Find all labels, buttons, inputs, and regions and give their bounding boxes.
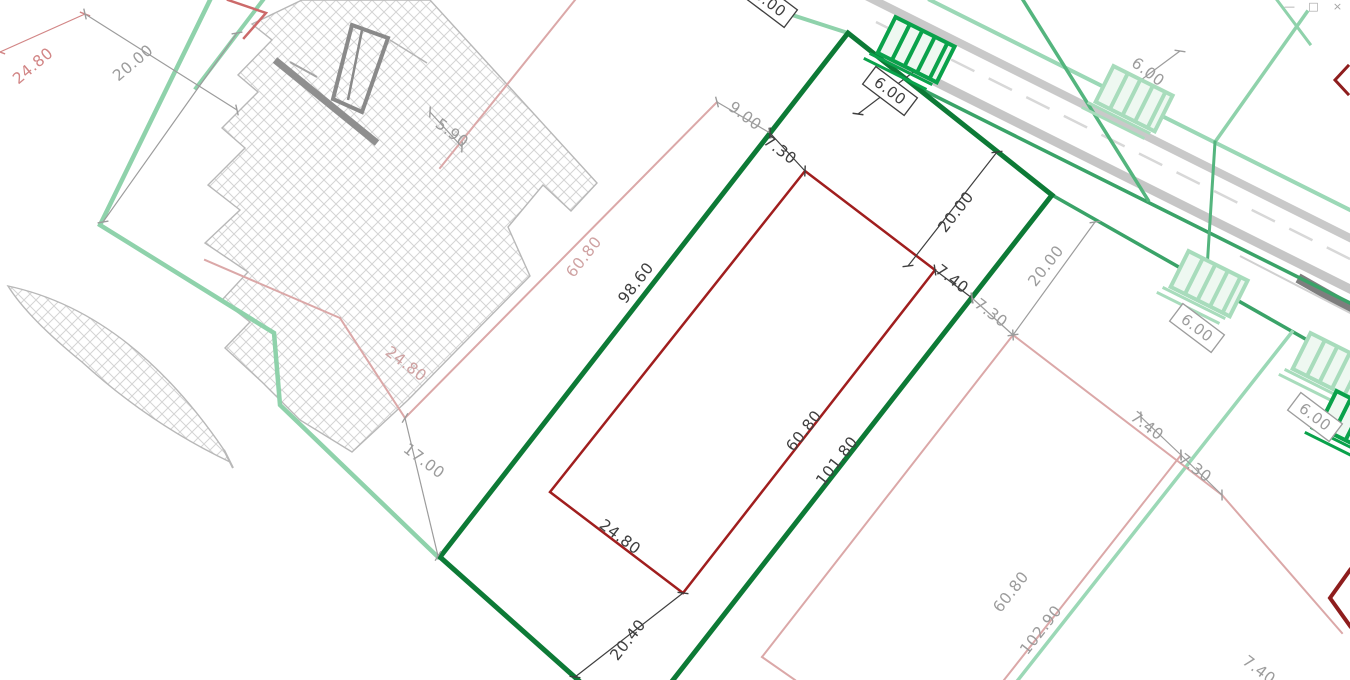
crossing-entrance-3	[1157, 247, 1248, 327]
green-branch-right	[1215, 12, 1307, 142]
pink-parcel2-bottom-side	[762, 657, 795, 680]
pink-parcel2-left-side	[762, 335, 1013, 657]
dim-label-20-00-5: 20.00	[934, 188, 977, 236]
red-chevron-right	[1330, 570, 1350, 626]
dim-20-00-right	[1008, 221, 1101, 336]
dim-label-7-30-7: 7.30	[971, 295, 1011, 331]
dim-label-60-80-11: 60.80	[562, 233, 605, 281]
dim-label-20-40-17: 20.40	[606, 616, 649, 664]
dim-label-7-40-6: 7.40	[932, 261, 972, 297]
restore-icon[interactable]: □	[1307, 1, 1320, 13]
cad-viewport[interactable]: — □ × 6.006.006.006.0024.8020.005.909.00…	[0, 0, 1350, 680]
hatch-triangle	[8, 286, 230, 462]
dim-label-7-40-22: 7.40	[1239, 652, 1279, 680]
dim-label-20-00-1: 20.00	[109, 41, 156, 85]
window-controls: — □ ×	[1283, 1, 1344, 13]
dim-label-60-80-14: 60.80	[782, 407, 825, 455]
parcel2-long-side-green	[1018, 332, 1292, 680]
close-icon[interactable]: ×	[1331, 1, 1344, 13]
minimize-icon[interactable]: —	[1283, 1, 1296, 13]
dim-label-101-80-15: 101.80	[812, 433, 861, 489]
site-plan-drawing[interactable]: 6.006.006.006.0024.8020.005.909.007.3020…	[0, 0, 1350, 680]
dim-label-9-00-3: 9.00	[725, 98, 765, 134]
red-chevron-top-right	[1335, 66, 1348, 94]
dim-label-24-80-0: 24.80	[9, 44, 56, 88]
dim-label-24-80-16: 24.80	[596, 516, 644, 559]
dim-label-17-00-13: 17.00	[400, 440, 448, 483]
dim-label-20-00-8: 20.00	[1024, 242, 1067, 290]
pink-parcel3-side	[1222, 495, 1342, 633]
hatch-strip	[205, 0, 597, 452]
dim-label-7-30-4: 7.30	[760, 132, 800, 168]
dim-label-60-80-20: 60.80	[989, 568, 1032, 616]
boxed-dim-label-6-00-1: 6.00	[743, 0, 798, 27]
subject-parcel-dark-green-bottom	[440, 557, 578, 680]
